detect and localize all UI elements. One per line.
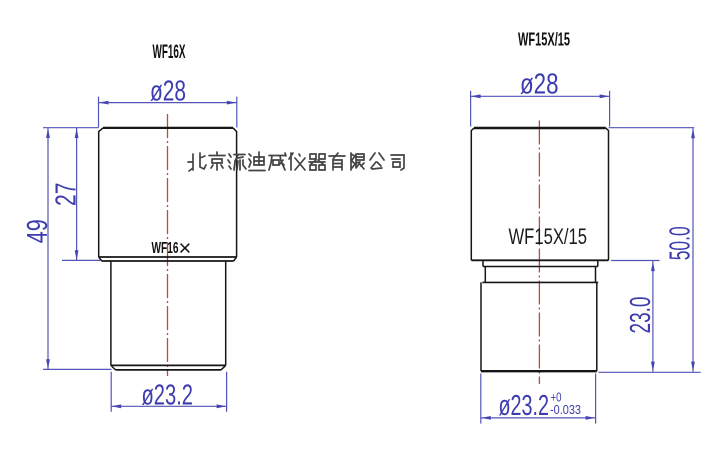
svg-text:WF15X/15: WF15X/15: [509, 224, 588, 249]
svg-text:WF16X: WF16X: [153, 42, 186, 63]
svg-text:-0.033: -0.033: [550, 402, 581, 417]
svg-text:WF15X/15: WF15X/15: [518, 30, 570, 50]
svg-text:ø28: ø28: [520, 68, 559, 100]
svg-text:ø23.2: ø23.2: [499, 390, 550, 422]
svg-text:49: 49: [22, 219, 54, 243]
svg-text:ø28: ø28: [150, 76, 186, 108]
svg-text:×: ×: [179, 236, 192, 261]
svg-text:27: 27: [50, 183, 82, 207]
svg-text:50.0: 50.0: [664, 226, 696, 260]
svg-text:WF16: WF16: [152, 240, 179, 257]
svg-text:23.0: 23.0: [625, 297, 657, 334]
svg-text:ø23.2: ø23.2: [142, 379, 194, 411]
